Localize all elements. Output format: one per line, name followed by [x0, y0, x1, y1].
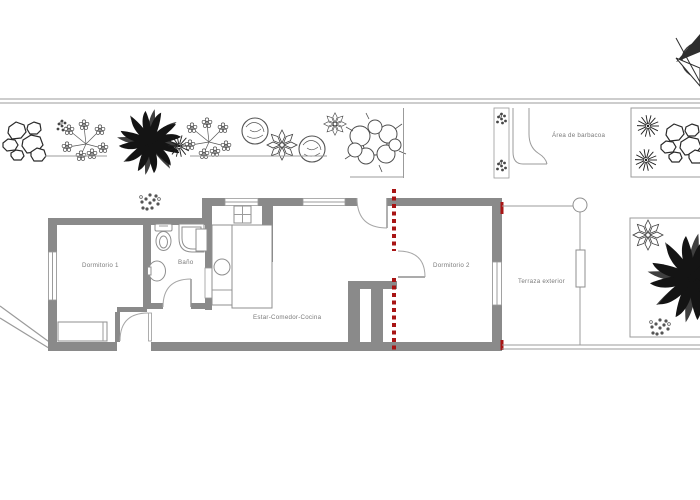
flower-branch-icon: [185, 118, 231, 159]
window-living-2: [303, 199, 345, 206]
star-flower-icon: [324, 113, 347, 136]
window-bedroom2: [493, 262, 502, 305]
living-label: Estar-Comedor-Cocina: [253, 314, 322, 321]
door-living-top: [357, 198, 387, 228]
garden-strip: [3, 108, 406, 178]
barbecue-screen-wall: [529, 108, 547, 164]
sink-icon: [214, 259, 230, 275]
planting-bed-top-right: [631, 108, 700, 177]
barbecue-area: Área de barbacoa: [494, 108, 606, 178]
palm-tree-icon: [117, 109, 184, 176]
palm-tree-icon: [647, 233, 700, 323]
terrace-label: Terraza exterior: [518, 278, 565, 285]
rock-cluster-icon: [661, 124, 700, 163]
round-bush-icon: [299, 136, 325, 162]
floor-plan-svg: Área de barbacoa: [0, 0, 700, 500]
window-living-1: [225, 199, 258, 206]
floor-plan-canvas: Área de barbacoa: [0, 0, 700, 500]
north-arrow-compass-icon: [676, 34, 700, 86]
house-walls: [48, 198, 502, 351]
kitchen-island: [232, 225, 272, 308]
dot-plant-icon: [140, 193, 161, 210]
door-bathroom: [163, 279, 191, 307]
star-flower-icon: [633, 220, 663, 250]
door-entrance: [120, 313, 152, 341]
dot-plant-icon: [650, 318, 671, 335]
window-bedroom1: [49, 252, 57, 300]
wardrobe: [58, 322, 107, 341]
bbq-area-label: Área de barbacoa: [552, 132, 606, 139]
bathroom-fixtures: [148, 224, 208, 281]
door-bedroom2: [398, 251, 425, 277]
planting-bed-bottom-right: [630, 218, 700, 337]
toilet-icon: [155, 224, 172, 251]
starburst-plant-icon: [635, 149, 657, 171]
rock-cluster-icon: [3, 122, 46, 161]
starburst-plant-icon: [637, 115, 659, 137]
property-boundary-line: [0, 99, 700, 103]
windows: [49, 199, 502, 306]
stove-icon: [234, 206, 251, 223]
bedroom1-label: Dormitorio 1: [82, 262, 119, 269]
bedroom2-label: Dormitorio 2: [433, 262, 470, 269]
shrub-icon: [345, 113, 406, 172]
flower-branch-icon: [62, 120, 108, 161]
access-ramp: [0, 306, 52, 350]
pass-through-bath-kitchen: [205, 268, 212, 298]
bath-cabinet: [196, 229, 207, 251]
reform-marks: [394, 189, 502, 350]
terrace-column: [573, 198, 587, 212]
round-bush-icon: [242, 118, 268, 144]
terrace-pillar: [576, 250, 585, 287]
bathroom-label: Baño: [178, 259, 194, 266]
